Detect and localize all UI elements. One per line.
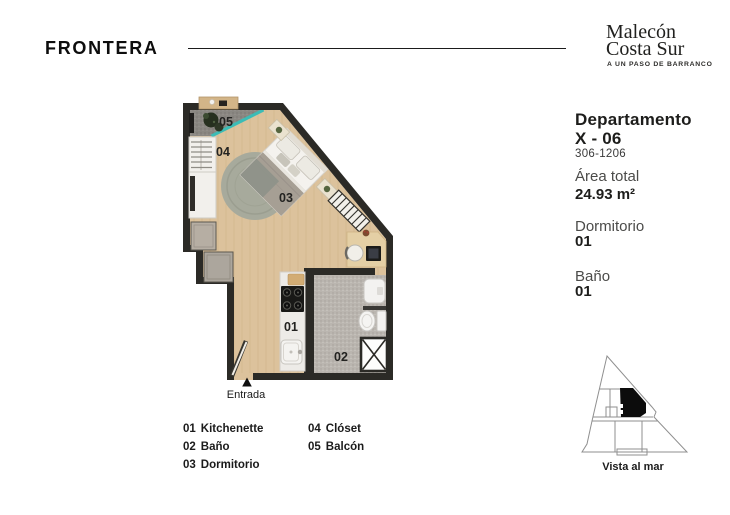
- floor-plan: 05 04 03 01 02 Entrada: [160, 85, 420, 405]
- toilet: [359, 311, 386, 331]
- legend-num: 03: [183, 459, 196, 471]
- closet: [189, 137, 216, 218]
- key-plan-caption: Vista al mar: [570, 461, 696, 473]
- legend-num: 04: [308, 423, 321, 435]
- area-label: Área total: [575, 168, 639, 185]
- bathroom-partition: [363, 306, 386, 310]
- entrance-label: Entrada: [227, 389, 266, 401]
- desk-plant: [363, 230, 370, 237]
- bathroom-vanity: [364, 279, 385, 303]
- desk-chair: [347, 245, 363, 261]
- bathroom-top-wall: [304, 268, 375, 275]
- balcony-wall-column: [189, 113, 194, 133]
- label-bedroom: 03: [279, 191, 293, 205]
- header-divider: [188, 48, 566, 49]
- unit-range: 306-1206: [575, 148, 626, 160]
- project-name-line2: Costa Sur: [606, 41, 684, 58]
- legend-item-bano: 02 Baño: [183, 438, 263, 456]
- label-balcony: 05: [219, 115, 233, 129]
- label-bath: 02: [334, 350, 348, 364]
- developer-logo: FRONTERA: [45, 38, 159, 59]
- building-key-plan: [568, 346, 698, 461]
- project-tagline: A UN PASO DE BARRANCO: [607, 61, 713, 68]
- legend-column-1: 01 Kitchenette 02 Baño 03 Dormitorio: [183, 420, 263, 474]
- unit-title-line2: X - 06: [575, 129, 622, 149]
- shower: [361, 338, 387, 371]
- legend-item-balcon: 05 Balcón: [308, 438, 364, 456]
- cutting-board: [288, 274, 304, 285]
- legend-name: Clóset: [326, 423, 361, 435]
- legend-name: Dormitorio: [201, 459, 260, 471]
- project-logo: Malecón Costa Sur: [606, 24, 684, 58]
- entry-door-opening: [234, 373, 253, 380]
- legend-item-dormitorio: 03 Dormitorio: [183, 456, 263, 474]
- legend-item-closet: 04 Clóset: [308, 420, 364, 438]
- balcony-console: [199, 97, 238, 109]
- area-value: 24.93 m²: [575, 186, 635, 203]
- legend-item-kitchenette: 01 Kitchenette: [183, 420, 263, 438]
- highlighted-unit: [620, 388, 646, 417]
- legend-name: Balcón: [326, 441, 364, 453]
- unit-title-line1: Departamento: [575, 110, 692, 130]
- label-closet: 04: [216, 145, 230, 159]
- legend-column-2: 04 Clóset 05 Balcón: [308, 420, 364, 456]
- legend-name: Kitchenette: [201, 423, 264, 435]
- legend-name: Baño: [201, 441, 230, 453]
- desk: [346, 230, 386, 267]
- bathrooms-value: 01: [575, 283, 592, 300]
- bedrooms-value: 01: [575, 233, 592, 250]
- legend-num: 05: [308, 441, 321, 453]
- label-kitchenette: 01: [284, 320, 298, 334]
- legend-num: 01: [183, 423, 196, 435]
- legend-num: 02: [183, 441, 196, 453]
